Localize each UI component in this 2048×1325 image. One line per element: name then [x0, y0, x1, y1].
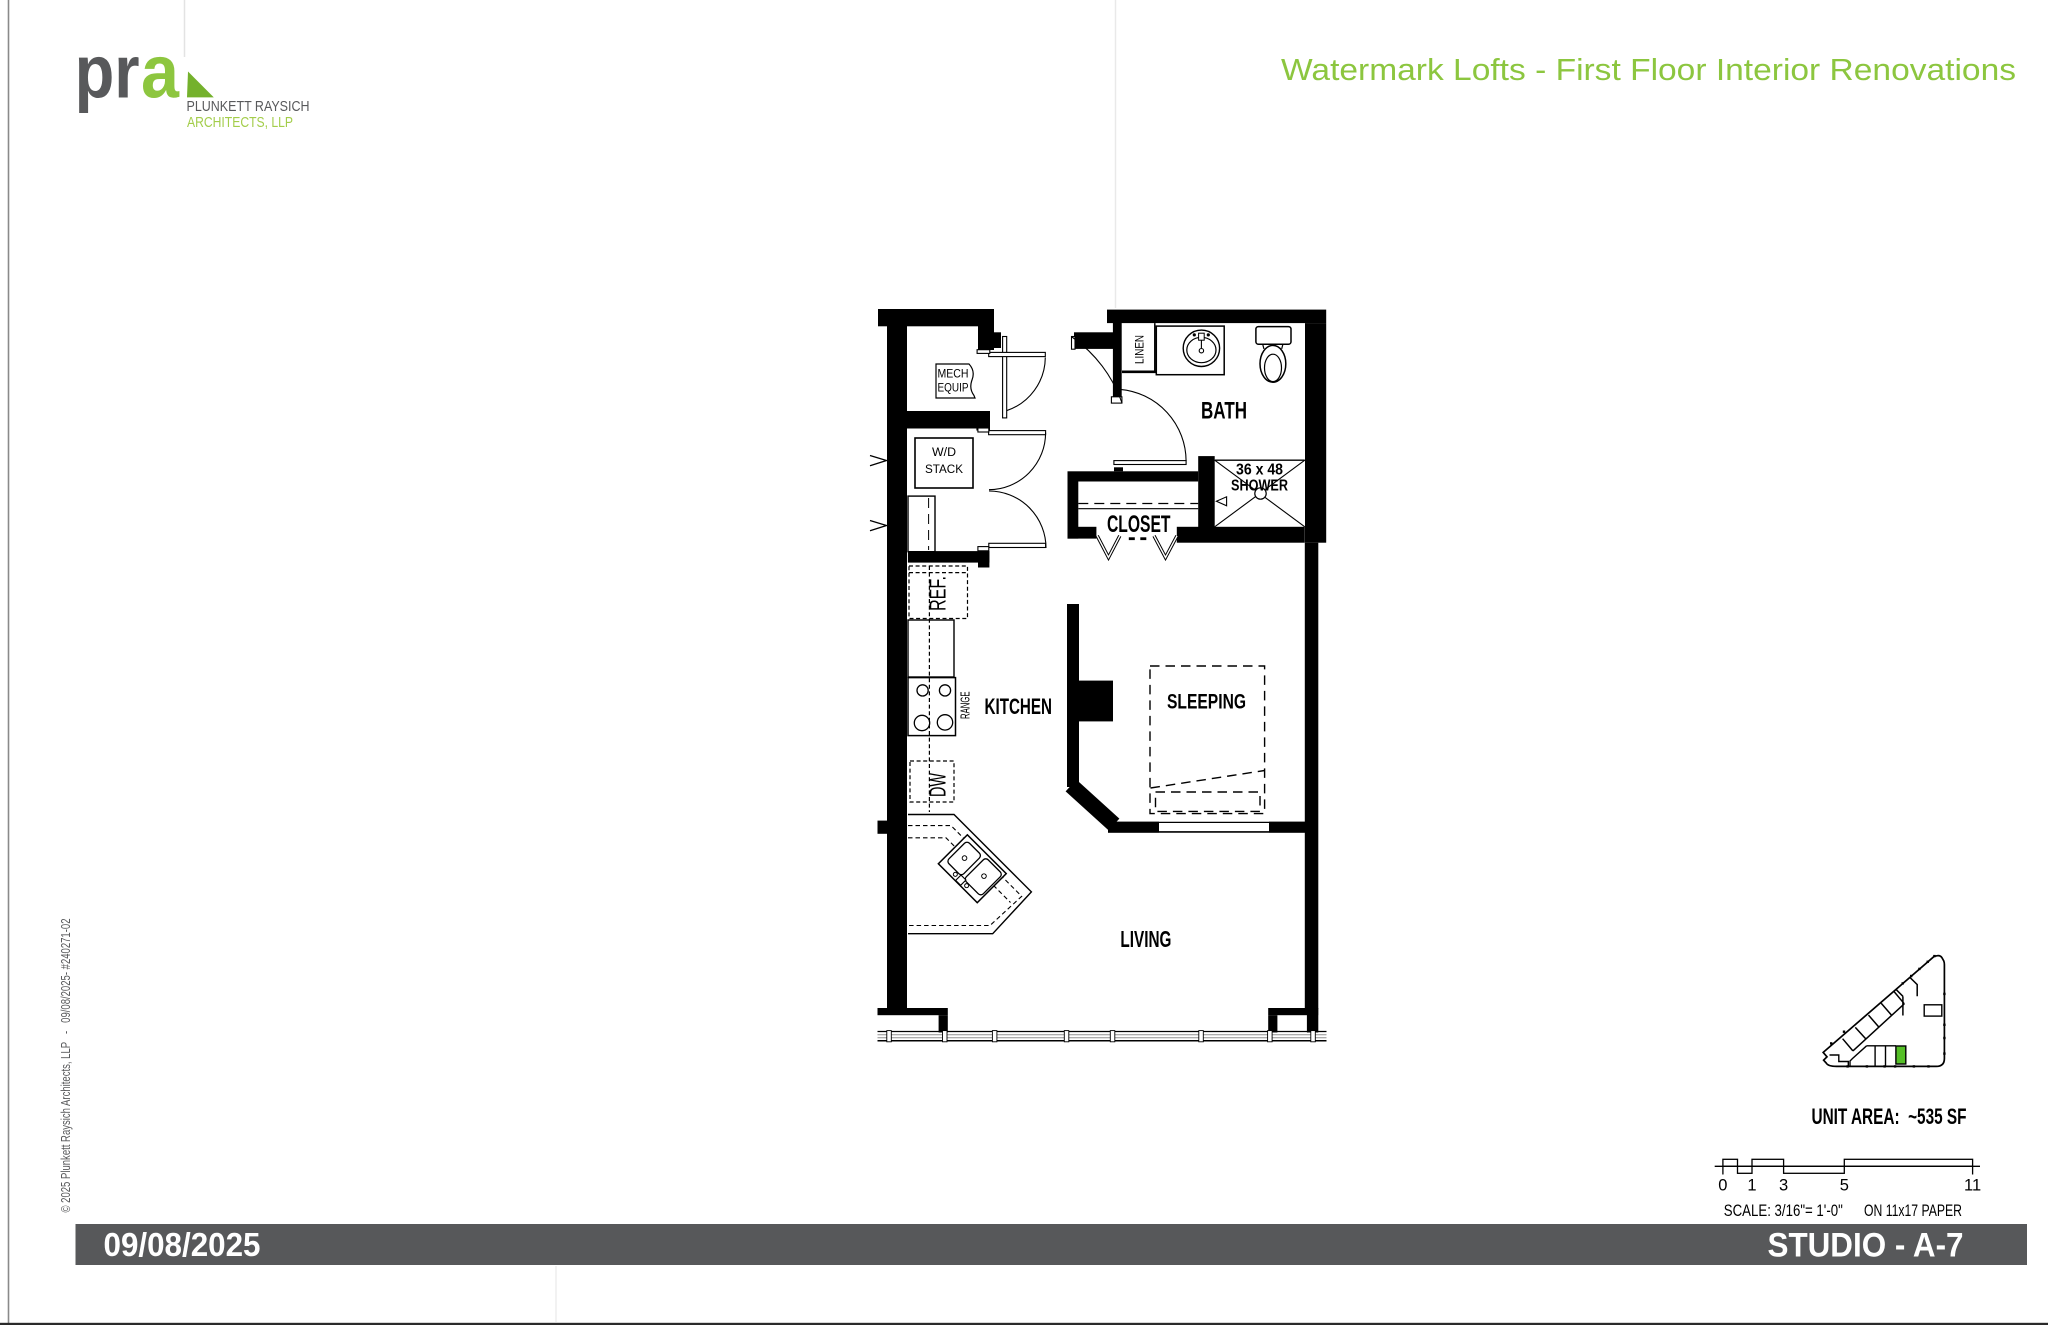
svg-text:© 2025 Plunkett Raysich Archit: © 2025 Plunkett Raysich Architects, LLP … — [59, 918, 73, 1212]
svg-text:LINEN: LINEN — [1133, 335, 1147, 364]
svg-text:STACK: STACK — [925, 462, 963, 476]
svg-text:MECH: MECH — [938, 367, 969, 381]
svg-text:5: 5 — [1840, 1177, 1849, 1195]
svg-text:CLOSET: CLOSET — [1107, 511, 1171, 538]
svg-text:09/08/2025: 09/08/2025 — [104, 1227, 261, 1264]
svg-text:RANGE: RANGE — [959, 692, 973, 720]
svg-text:PLUNKETT RAYSICH: PLUNKETT RAYSICH — [187, 99, 310, 115]
svg-text:1: 1 — [1747, 1177, 1756, 1195]
svg-text:KITCHEN: KITCHEN — [985, 694, 1053, 719]
svg-text:UNIT AREA: ~535 SF: UNIT AREA: ~535 SF — [1812, 1104, 1967, 1129]
svg-text:LIVING: LIVING — [1120, 926, 1171, 952]
svg-text:BATH: BATH — [1201, 397, 1247, 424]
svg-text:SHOWER: SHOWER — [1231, 478, 1288, 495]
svg-text:STUDIO - A-7: STUDIO - A-7 — [1768, 1227, 1964, 1265]
svg-text:REF.: REF. — [925, 576, 951, 611]
svg-text:DW: DW — [925, 773, 951, 797]
svg-text:pr: pr — [75, 29, 140, 113]
svg-text:W/D: W/D — [932, 445, 956, 459]
svg-text:3: 3 — [1779, 1177, 1788, 1195]
svg-text:0: 0 — [1718, 1177, 1727, 1195]
svg-text:EQUIP: EQUIP — [938, 381, 969, 395]
svg-text:36 x 48: 36 x 48 — [1236, 461, 1283, 478]
svg-text:ON 11x17 PAPER: ON 11x17 PAPER — [1864, 1201, 1962, 1220]
svg-text:11: 11 — [1964, 1177, 1981, 1195]
svg-text:a: a — [141, 29, 180, 113]
svg-text:Watermark Lofts - First Floor: Watermark Lofts - First Floor Interior R… — [1281, 53, 2016, 87]
svg-text:SLEEPING: SLEEPING — [1167, 689, 1246, 713]
svg-text:ARCHITECTS, LLP: ARCHITECTS, LLP — [187, 115, 293, 131]
svg-text:SCALE: 3/16"= 1'-0": SCALE: 3/16"= 1'-0" — [1724, 1201, 1843, 1220]
